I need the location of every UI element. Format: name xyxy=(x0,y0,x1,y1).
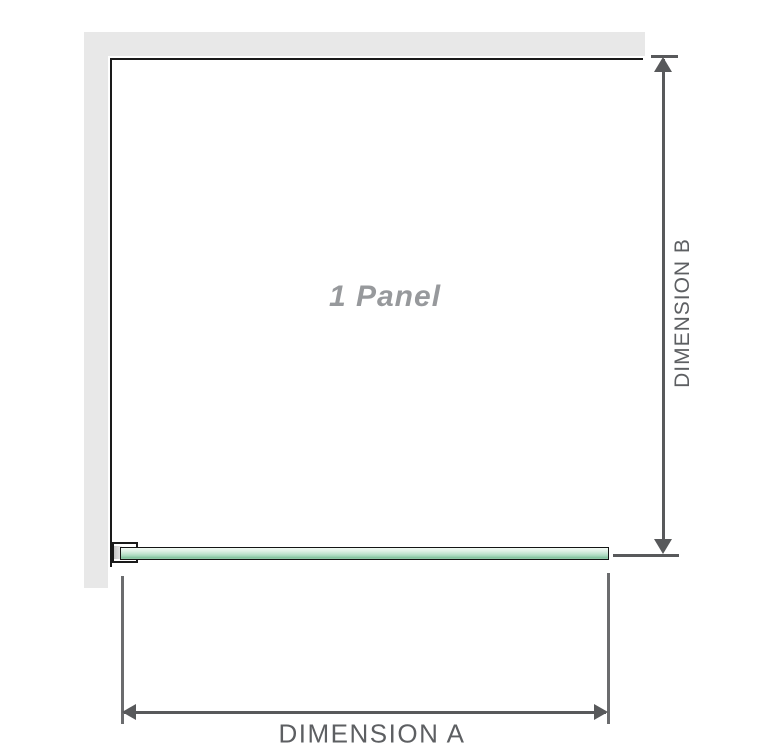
arrow-right-icon xyxy=(594,704,608,720)
arrow-down-icon xyxy=(654,539,672,554)
panel-count-label: 1 Panel xyxy=(329,280,441,314)
dimension-a-extension-left xyxy=(121,576,124,724)
wall-band-left xyxy=(84,32,108,588)
dimension-a-extension-right xyxy=(607,573,610,724)
wall-band-top xyxy=(84,32,645,56)
dimension-a-label: DIMENSION A xyxy=(279,719,466,750)
dimension-a-line xyxy=(124,711,606,714)
arrow-left-icon xyxy=(122,704,136,720)
panel-dimension-diagram: 1 Panel DIMENSION B DIMENSION A xyxy=(0,0,771,755)
dimension-b-extension-bottom xyxy=(613,554,679,557)
panel-outline-left-edge xyxy=(110,58,112,567)
arrow-up-icon xyxy=(654,57,672,72)
dimension-b-label: DIMENSION B xyxy=(671,238,695,388)
glass-panel-bar xyxy=(120,547,609,560)
dimension-b-line xyxy=(662,59,665,551)
panel-outline-top-edge xyxy=(110,58,643,60)
